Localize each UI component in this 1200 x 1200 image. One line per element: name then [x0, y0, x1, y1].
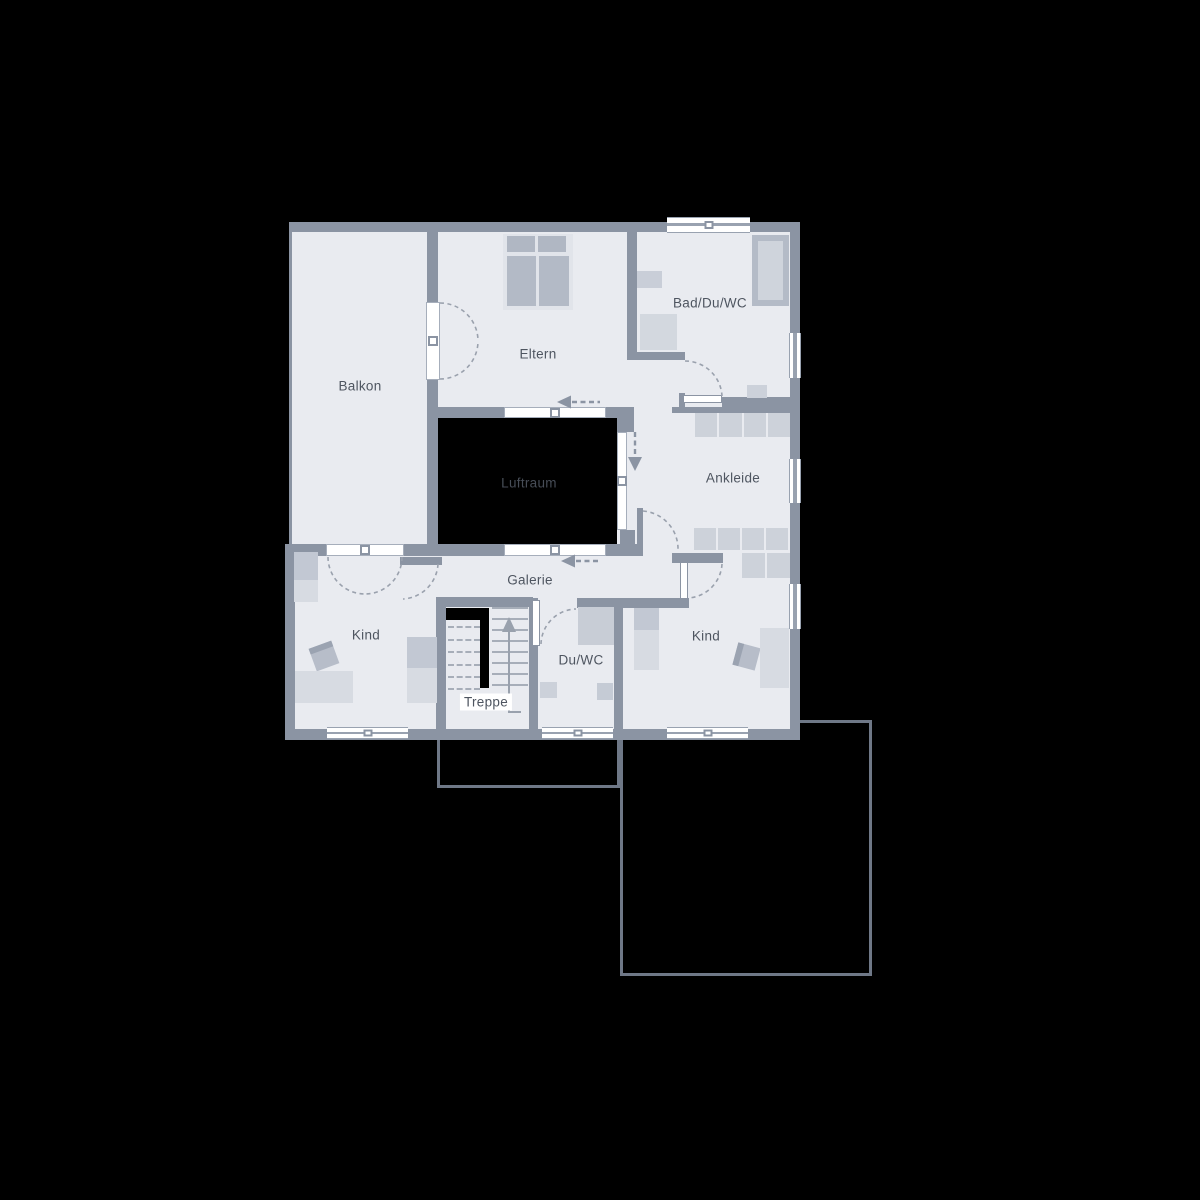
shower — [578, 607, 614, 645]
shower — [640, 314, 677, 350]
wall-segment — [627, 232, 637, 352]
stair-tread — [448, 688, 480, 690]
stair-tread — [448, 639, 480, 641]
room-label-bad: Bad/Du/WC — [673, 296, 747, 311]
pillow — [538, 236, 566, 252]
window-symbol — [789, 333, 801, 378]
room-label-duwc: Du/WC — [559, 653, 604, 668]
railing-post — [550, 545, 560, 555]
window-symbol — [789, 584, 801, 629]
room-label-luftraum: Luftraum — [501, 476, 557, 491]
wardrobe-cell — [719, 413, 741, 437]
stair-tread — [448, 676, 480, 678]
wardrobe-cell — [695, 413, 717, 437]
wardrobe-cell — [742, 553, 765, 578]
stair-tread — [492, 662, 528, 664]
railing-symbol — [504, 407, 606, 418]
stair-tread — [492, 651, 528, 653]
window-mullion — [363, 730, 372, 737]
railing-post — [550, 408, 560, 418]
bathtub-basin — [758, 241, 783, 300]
wall-segment — [614, 598, 623, 740]
floorplan-canvas: Balkon Eltern Bad/Du/WC Ankleide Luftrau… — [0, 0, 1200, 1200]
desk — [760, 628, 789, 688]
window-mullion — [703, 730, 712, 737]
wall-segment — [620, 530, 635, 544]
blanket — [507, 256, 536, 306]
window-symbol — [667, 727, 748, 739]
stair-tread — [492, 684, 528, 686]
window-mullion — [573, 730, 582, 737]
toilet — [747, 385, 767, 398]
double-door-symbol — [426, 302, 440, 380]
bed — [407, 668, 437, 703]
wall-segment — [436, 597, 533, 607]
stair-tread — [492, 640, 528, 642]
wall-segment — [400, 557, 442, 565]
wall-segment — [637, 508, 643, 556]
door-leaf — [680, 562, 688, 599]
door-leaf — [532, 600, 540, 646]
blanket — [539, 256, 569, 306]
wardrobe-cell — [744, 413, 766, 437]
wardrobe — [634, 630, 659, 670]
wardrobe-cell — [718, 528, 740, 550]
wardrobe-cell — [768, 413, 790, 437]
double-door-symbol — [326, 544, 404, 556]
toilet — [597, 683, 613, 700]
window-symbol — [789, 459, 801, 503]
window-symbol — [542, 727, 613, 739]
stair-tread — [448, 651, 480, 653]
railing-symbol — [617, 432, 627, 530]
room-label-galerie: Galerie — [507, 573, 553, 588]
room-label-treppe: Treppe — [460, 694, 512, 711]
wall-segment — [436, 597, 446, 740]
door-post — [360, 545, 370, 555]
wardrobe-cell — [742, 528, 764, 550]
desk — [295, 671, 353, 703]
wardrobe-cell — [694, 528, 716, 550]
wall-segment — [627, 352, 685, 360]
bed — [407, 637, 437, 668]
railing-post — [617, 476, 627, 486]
window-symbol — [327, 727, 408, 739]
door-leaf — [683, 395, 722, 403]
wall-segment — [427, 232, 438, 556]
stair-tread — [448, 664, 480, 666]
wardrobe — [634, 608, 659, 630]
footprint-outline-small — [437, 737, 620, 788]
room-label-kind-right: Kind — [692, 629, 720, 644]
wardrobe-cell — [767, 553, 790, 578]
wardrobe — [695, 413, 790, 437]
stair-tread — [492, 673, 528, 675]
room-label-ankleide: Ankleide — [706, 471, 760, 486]
wardrobe — [294, 580, 318, 602]
room-label-kind-left: Kind — [352, 628, 380, 643]
wardrobe — [294, 552, 318, 580]
room-label-eltern: Eltern — [519, 347, 556, 362]
footprint-outline-large — [620, 720, 872, 976]
wardrobe — [742, 553, 790, 578]
door-post — [428, 336, 438, 346]
wall-segment — [722, 397, 793, 407]
stair-tread — [492, 607, 528, 609]
wall-segment — [617, 418, 634, 432]
sink — [540, 682, 557, 698]
stair-tread — [492, 629, 528, 631]
wardrobe-cell — [766, 528, 788, 550]
stair-tread — [492, 618, 528, 620]
wall-segment — [289, 232, 292, 548]
stair-tread — [448, 626, 480, 628]
railing-symbol — [504, 544, 606, 556]
window-mullion — [704, 221, 713, 229]
window-symbol — [667, 217, 750, 233]
sink — [637, 271, 662, 288]
wardrobe — [694, 528, 788, 550]
room-label-balkon: Balkon — [338, 379, 381, 394]
pillow — [507, 236, 535, 252]
stair-wall — [480, 608, 489, 688]
